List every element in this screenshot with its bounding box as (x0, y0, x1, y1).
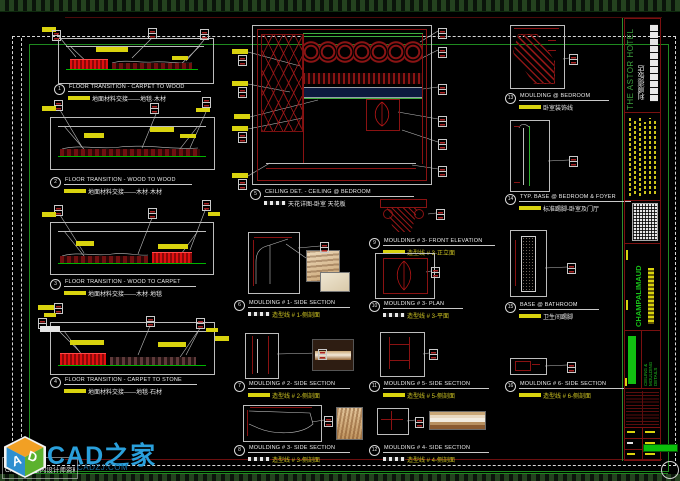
hatch (261, 34, 303, 132)
title-block-divider (624, 243, 661, 244)
floor-baseline (58, 156, 206, 157)
notes-text (639, 118, 641, 196)
stone-hatch (110, 357, 196, 365)
detail-title: MOULDING @ BEDROOM (519, 93, 609, 101)
detail-title: MOULDING # 3- PLAN (383, 301, 463, 309)
detail-subtitle: 造型线 # 6-侧剖面 (543, 391, 591, 400)
detail-subtitle: 天花详图-卧室 天花板 (288, 199, 346, 208)
callout-tag (567, 362, 576, 373)
detail-number: 2 (50, 177, 61, 188)
detail-subtitle: 地面材料交接——地毯·石材 (88, 387, 162, 396)
highlight-bar (64, 389, 86, 394)
callout-tag (431, 267, 440, 278)
material-tag (232, 126, 248, 131)
profile-box (515, 361, 531, 371)
dim-line (514, 126, 520, 127)
section-line (58, 331, 206, 332)
material-tag (232, 81, 248, 86)
callout-tag (438, 139, 447, 150)
detail-title: FLOOR TRANSITION - CARPET TO STONE (64, 377, 197, 385)
detail-subtitle: 造型线 # 1-侧剖面 (272, 310, 320, 319)
detail-drawing (248, 232, 300, 294)
material-tag (158, 244, 188, 249)
dim-line (514, 182, 520, 183)
red-line (303, 34, 304, 164)
red-line (266, 168, 416, 169)
callout-tag (148, 208, 157, 219)
detail-title: MOULDING # 2- SIDE SECTION (248, 381, 350, 389)
dim-line (252, 336, 253, 374)
scale-bar (248, 457, 270, 462)
dim-line (548, 50, 556, 51)
grid-cell-text (645, 453, 655, 455)
dim-line (389, 344, 409, 345)
moulding-photo (429, 411, 486, 430)
registration-mark (661, 461, 679, 479)
project-name-en: THE ASTOR HOTEL (626, 22, 635, 110)
highlight-bar (519, 314, 541, 319)
material-tag (180, 134, 196, 138)
watermark-url[interactable]: CADZJ.COM (77, 463, 128, 472)
section-line (58, 231, 206, 232)
profile-line-green (529, 126, 530, 186)
detail-subtitle: 卫生间踢脚 (543, 312, 573, 321)
callout-tag (567, 263, 576, 274)
callout-tag (320, 242, 329, 253)
callout-tag (438, 47, 447, 58)
callout-tag (438, 166, 447, 177)
section-line (66, 46, 204, 47)
detail-title: MOULDING # 3- FRONT ELEVATION (383, 238, 495, 246)
material-tag (232, 173, 248, 178)
highlight-bar (383, 393, 405, 398)
detail-number: 15 (505, 302, 516, 313)
detail-subtitle: 地面材料交接——木材·木材 (88, 187, 162, 196)
grid-cell-text (627, 431, 635, 433)
floor-baseline (58, 263, 206, 264)
material-tag (70, 340, 104, 345)
detail-number: 12 (369, 445, 380, 456)
notes-text (654, 120, 656, 194)
callout-tag (52, 30, 61, 41)
detail-number: 3 (50, 279, 61, 290)
material-tag (42, 212, 56, 217)
dim-line (514, 28, 559, 29)
revision-table-divider (642, 391, 643, 425)
red-line (422, 34, 423, 164)
detail-number: 5 (250, 189, 261, 200)
wood-hatch (60, 149, 200, 156)
detail-number: 9 (369, 238, 380, 249)
material-tag (158, 342, 186, 347)
detail-title: MOULDING # 3- SIDE SECTION (248, 445, 350, 453)
detail-title: MOULDING # 4- SIDE SECTION (383, 445, 489, 453)
callout-tag (200, 29, 209, 40)
callout-tag (429, 349, 438, 360)
title-block-divider (624, 330, 661, 331)
material-tag (208, 212, 220, 216)
dim-line (389, 337, 390, 369)
highlight-bar (519, 206, 541, 211)
material-tag (44, 313, 56, 317)
detail-title: MOULDING # 5- SIDE SECTION (383, 381, 489, 389)
callout-tag (438, 116, 447, 127)
dim-line (409, 337, 410, 369)
callout-tag (238, 179, 247, 190)
detail-title: FLOOR TRANSITION - CARPET TO WOOD (68, 84, 201, 92)
callout-tag (569, 54, 578, 65)
scale-bar (264, 201, 286, 206)
selection-highlight (643, 444, 678, 452)
callout-tag (318, 349, 327, 360)
material-tag (172, 56, 188, 60)
profile-line (257, 339, 258, 373)
highlight-bar (248, 393, 270, 398)
detail-subtitle: 造型线 # 3-侧剖面 (272, 455, 320, 464)
project-name-cn: 利顺德饭店 (637, 30, 647, 100)
detail-number: 6 (234, 300, 245, 311)
mini-label (625, 378, 627, 386)
callout-tag (438, 28, 447, 39)
material-tag (84, 133, 104, 138)
highlight-bar (68, 96, 90, 101)
highlight-bar (64, 189, 86, 194)
callout-tag (202, 200, 211, 211)
material-tag (42, 106, 56, 111)
detail-number: 1 (54, 84, 65, 95)
callout-tag (569, 156, 578, 167)
title-block-divider (624, 388, 661, 389)
dim-line (391, 411, 392, 430)
detail-subtitle: 造型线 # 3-平面 (407, 311, 449, 320)
notes-text (634, 120, 636, 194)
dim-line (515, 240, 516, 286)
detail-number: 7 (234, 381, 245, 392)
material-tag (96, 47, 128, 52)
material-tag (38, 305, 54, 310)
firm-highlight (648, 268, 654, 324)
detail-title: TYP. BASE @ BEDROOM & FOYER (519, 194, 631, 202)
notes-text (649, 118, 651, 194)
detail-title: FLOOR TRANSITION - WOOD TO CARPET (64, 279, 196, 287)
material-tag (40, 326, 60, 332)
detail-title: FLOOR TRANSITION - WOOD TO WOOD (64, 177, 192, 185)
dim-line (381, 419, 403, 420)
cad-sheet: 1 FLOOR TRANSITION - CARPET TO WOOD 地面材料… (0, 0, 680, 481)
detail-subtitle: 地面材料交接——地毯·木材 (92, 94, 166, 103)
detail-subtitle: 标准踢脚-卧室及门厅 (543, 204, 599, 213)
detail-number: 16 (505, 381, 516, 392)
floor-baseline (66, 69, 198, 70)
grid-cell-text (645, 431, 655, 433)
dim-line (250, 407, 312, 408)
title-block-divider (641, 331, 642, 388)
wood-hatch (60, 256, 148, 263)
detail-title: CEILING DET. - CEILING @ BEDROOM (264, 189, 414, 197)
callout-tag (438, 84, 447, 95)
detail-subtitle: 造型线 # 4-侧剖面 (407, 455, 455, 464)
dim-line (247, 410, 248, 436)
detail-subtitle: 卧室装饰线 (543, 103, 573, 112)
mini-label (626, 300, 628, 310)
detail-subtitle: 地面材料交接——木材·地毯 (88, 289, 162, 298)
notes-text (629, 118, 631, 196)
notes-text (644, 122, 646, 194)
crown-ornament-band (303, 36, 423, 71)
section-line (58, 126, 206, 127)
detail-subtitle: 造型线 # 2-侧剖面 (272, 391, 320, 400)
grid-cell-text (627, 442, 633, 444)
stamp-seal (632, 203, 658, 241)
sheet-number-bar (628, 336, 636, 384)
material-tag (206, 328, 218, 332)
callout-tag (202, 97, 211, 108)
scale-bar (383, 313, 405, 318)
callout-tag (238, 132, 247, 143)
highlight-bar (519, 105, 541, 110)
detail-drawing (245, 333, 279, 379)
detail-number: 13 (505, 93, 516, 104)
brand-cube-icon: A D (4, 436, 46, 478)
callout-tag (238, 87, 247, 98)
ornament-box (366, 99, 400, 131)
detail-drawing (50, 322, 215, 375)
material-tag (232, 49, 248, 54)
ornament-frame (383, 258, 428, 294)
moulding-photo (336, 407, 363, 440)
dim-line (254, 237, 292, 238)
detail-number: 4 (50, 377, 61, 388)
material-tag (76, 241, 94, 246)
detail-drawing (50, 222, 214, 275)
dim-line (532, 364, 540, 365)
detail-title: BASE @ BATHROOM (519, 302, 599, 310)
detail-drawing (243, 405, 322, 442)
material-tag (150, 127, 174, 132)
callout-tag (415, 417, 424, 428)
callout-tag (146, 316, 155, 327)
callout-tag (196, 318, 205, 329)
profile-line (523, 128, 524, 185)
floor-baseline (58, 365, 206, 366)
scale-bar (248, 312, 270, 317)
cove-band (303, 87, 423, 98)
sheet-title-line: DETAILS (653, 334, 658, 386)
callout-tag (436, 209, 445, 220)
callout-tag (238, 55, 247, 66)
dim-line (253, 240, 254, 286)
callout-tag (150, 103, 159, 114)
detail-number: 14 (505, 194, 516, 205)
callout-tag (324, 416, 333, 427)
detail-drawing (380, 332, 425, 377)
dim-line (389, 360, 409, 361)
title-block-divider (624, 200, 661, 201)
detail-drawing (50, 117, 215, 170)
material-tag (215, 336, 229, 341)
section-line (266, 163, 416, 164)
detail-drawing (377, 408, 409, 435)
detail-number: 8 (234, 445, 245, 456)
highlight-bar (519, 393, 541, 398)
detail-title: MOULDING # 1- SIDE SECTION (248, 300, 350, 308)
green-accent-line (303, 33, 423, 34)
detail-number: 10 (369, 301, 380, 312)
revision-strip (650, 24, 658, 102)
moulding-photo (320, 272, 350, 292)
detail-number: 11 (369, 381, 380, 392)
detail-title: MOULDING # 6- SIDE SECTION (519, 381, 627, 389)
dim-line (548, 40, 556, 41)
dim-line (268, 336, 269, 374)
base-profile (521, 236, 536, 292)
highlight-bar (64, 291, 86, 296)
crown-top-bar (380, 199, 427, 208)
mini-label (626, 250, 628, 260)
fluted-band (303, 73, 423, 84)
detail-subtitle: 造型线 # 5-侧剖面 (407, 391, 455, 400)
material-tag (234, 114, 250, 119)
green-accent-line (303, 98, 423, 99)
title-block-divider (624, 112, 661, 113)
firm-name: CHAMPALIMAUD (634, 267, 643, 327)
callout-tag (148, 28, 157, 39)
grid-cell-text (627, 453, 635, 455)
scale-bar (383, 457, 405, 462)
material-tag (196, 108, 210, 112)
